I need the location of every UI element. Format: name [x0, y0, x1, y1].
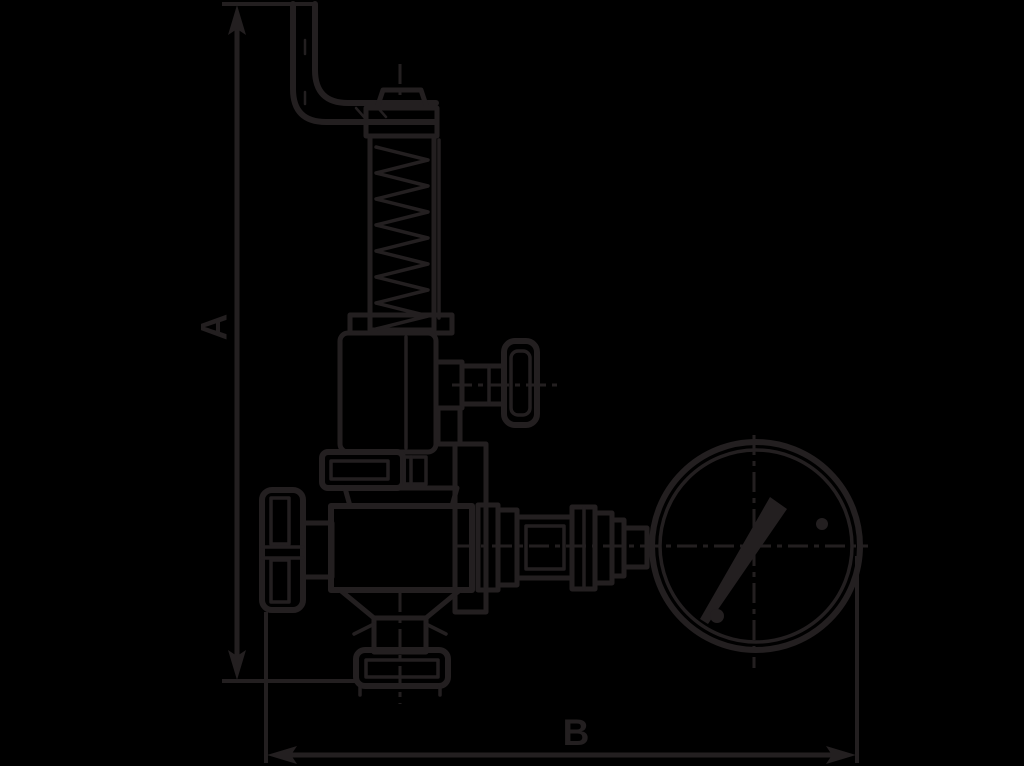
gauge-needle: [700, 497, 787, 624]
handwheel-spoke-upper: [271, 498, 289, 544]
gauge-screw: [816, 518, 828, 530]
union-nut-facet: [331, 461, 388, 479]
handwheel-rim: [262, 490, 303, 610]
outlet-flare-left: [354, 624, 374, 634]
outlet-flare-right: [426, 624, 446, 634]
lever-shading-tick: [356, 108, 364, 117]
stem-packing: [303, 523, 332, 577]
valve-technical-drawing: A B: [0, 0, 1024, 766]
spring-housing: [350, 90, 452, 333]
gauge-screw: [710, 609, 724, 623]
boss-column: [438, 408, 460, 444]
knob-inner-rim: [511, 351, 530, 415]
union-nut: [322, 452, 426, 488]
dimension-a-label: A: [194, 314, 235, 341]
union-collar: [404, 457, 426, 484]
union-nut-outline: [322, 452, 403, 488]
fitting-ring: [595, 513, 612, 583]
body-block: [331, 506, 472, 590]
handwheel-spoke-lower: [271, 560, 289, 602]
flange-outline: [356, 650, 448, 686]
flange-facet: [366, 660, 438, 677]
test-knob: [462, 341, 537, 425]
handwheel: [262, 490, 303, 610]
coil-spring: [376, 147, 428, 329]
drawing-canvas: A B: [0, 0, 1024, 766]
dimension-b-label: B: [563, 712, 590, 753]
lifting-lever: [293, 4, 436, 122]
bonnet: [340, 333, 462, 452]
knob-rim: [504, 341, 537, 425]
bonnet-body: [340, 333, 436, 452]
centerlines: [400, 64, 868, 704]
